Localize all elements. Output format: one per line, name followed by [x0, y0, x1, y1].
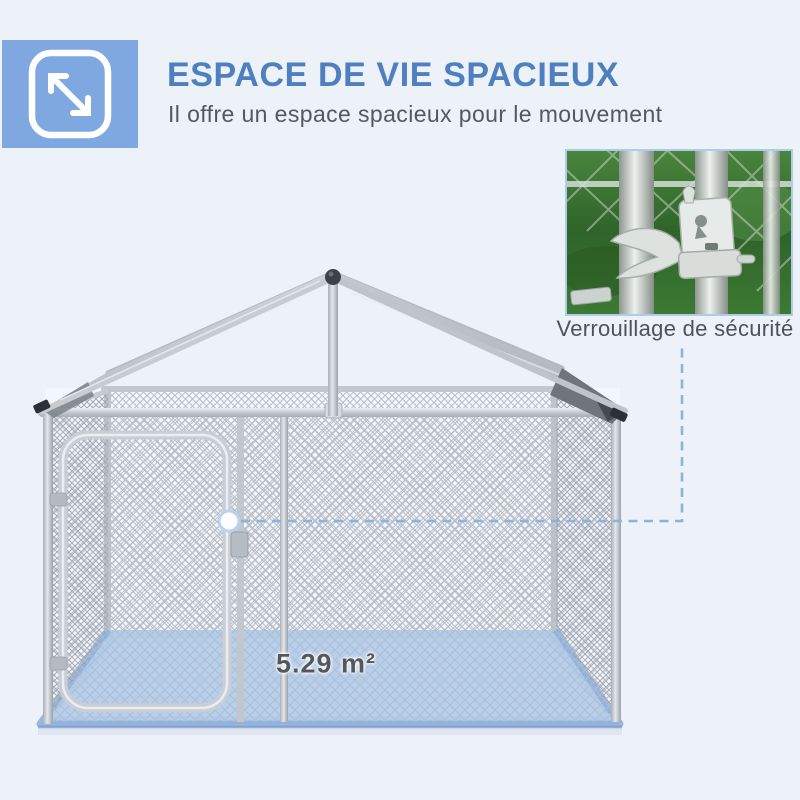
- roof-peak-cap: [325, 269, 341, 285]
- gable-center-pole: [328, 277, 338, 416]
- latch-highlight-circle: [219, 511, 239, 531]
- callout-label: Verrouillage de sécurité: [553, 316, 797, 342]
- security-latch-photo: [565, 149, 793, 316]
- latch-photo-illustration: [567, 151, 791, 314]
- kennel-illustration: [0, 0, 800, 800]
- floor-area-label: 5.29 m²: [276, 649, 376, 680]
- background-rail: [567, 181, 791, 187]
- door-hinge-top: [50, 493, 67, 506]
- right-far-post: [763, 151, 780, 314]
- door-hinge-bottom: [50, 657, 67, 670]
